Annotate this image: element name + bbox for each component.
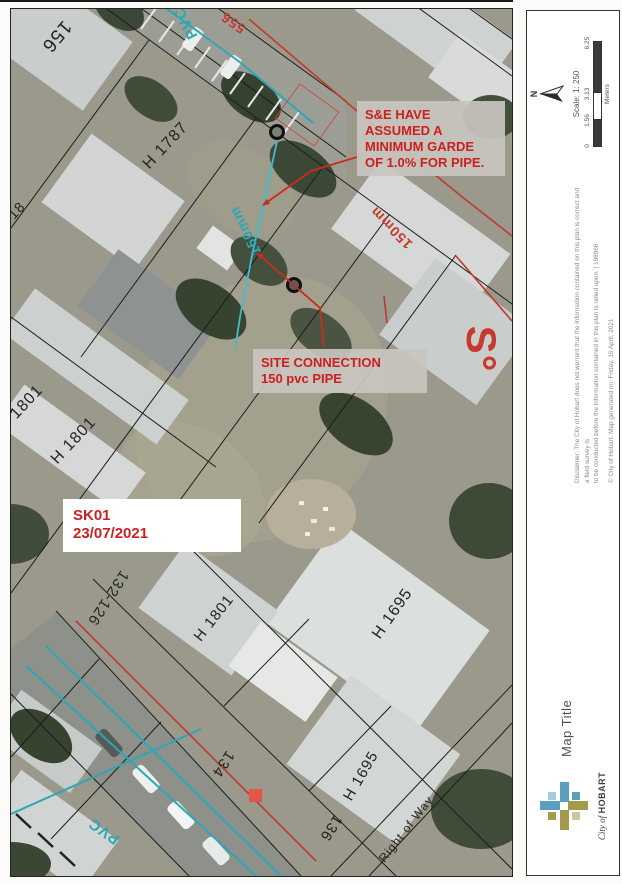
red-square-marker [249,789,262,802]
title-block-panel: City of HOBART Map Title Disclaimer: The… [526,10,620,876]
compass-needle-icon [539,81,565,107]
disclaimer-line-1: Disclaimer: The City of Hobart does not … [573,183,592,483]
scale-bar: 0 1.56 3.13 6.25 Meters [584,41,611,147]
north-label: N [530,74,539,114]
scan-edge-artifact [0,0,513,2]
city-of-hobart-logo-icon [539,781,589,831]
logo-wordmark: City of HOBART [597,751,607,861]
note-sae-assumption: S&E HAVE ASSUMED A MINIMUM GARDE OF 1.0%… [357,101,505,176]
tick-313: 3.13 [584,88,591,101]
disclaimer-block: Disclaimer: The City of Hobart does not … [573,183,616,483]
map-title: Map Title [559,700,574,757]
tick-625: 6.25 [584,37,591,50]
tick-156: 1.56 [584,114,591,127]
scale-bar-segments [593,41,602,147]
note-line: OF 1.0% FOR PIPE. [365,155,497,171]
logo-city-of: City of [597,816,607,840]
north-arrow: N [530,74,570,114]
note-line: MINIMUM GARDE [365,139,497,155]
note-line: 150 pvc PIPE [261,371,419,387]
note-sketch-id: SK01 23/07/2021 [63,499,241,552]
aerial-map: 156 556 PVC 150mm H 1787 H 18 H 1801 H 1… [10,8,513,877]
scale-units: Meters [604,41,611,147]
scanned-plan-page: 156 556 PVC 150mm H 1787 H 18 H 1801 H 1… [0,0,622,884]
sewer-symbol-s: S° [457,326,505,373]
title-block-content: City of HOBART Map Title Disclaimer: The… [527,11,619,875]
scale-group: N Scale: 1: 250 0 1.56 3.13 6.25 [530,29,611,159]
disclaimer-line-2: to be conducted before the information c… [592,183,602,483]
hobart-logo-block: City of HOBART [539,751,607,861]
copyright-line: © City of Hobart. Map generated on: Frid… [607,183,617,483]
scale-text: Scale: 1: 250 [572,29,581,159]
manhole [271,126,284,139]
scale-tick-labels: 0 1.56 3.13 6.25 [584,41,593,147]
rubble-pile [266,479,356,549]
note-line: ASSUMED A [365,123,497,139]
tick-0: 0 [584,144,591,148]
sketch-date: 23/07/2021 [73,525,231,543]
sketch-number: SK01 [73,507,231,525]
note-line: SITE CONNECTION [261,355,419,371]
note-site-connection: SITE CONNECTION 150 pvc PIPE [253,349,427,393]
logo-hobart: HOBART [597,772,607,814]
note-line: S&E HAVE [365,107,497,123]
